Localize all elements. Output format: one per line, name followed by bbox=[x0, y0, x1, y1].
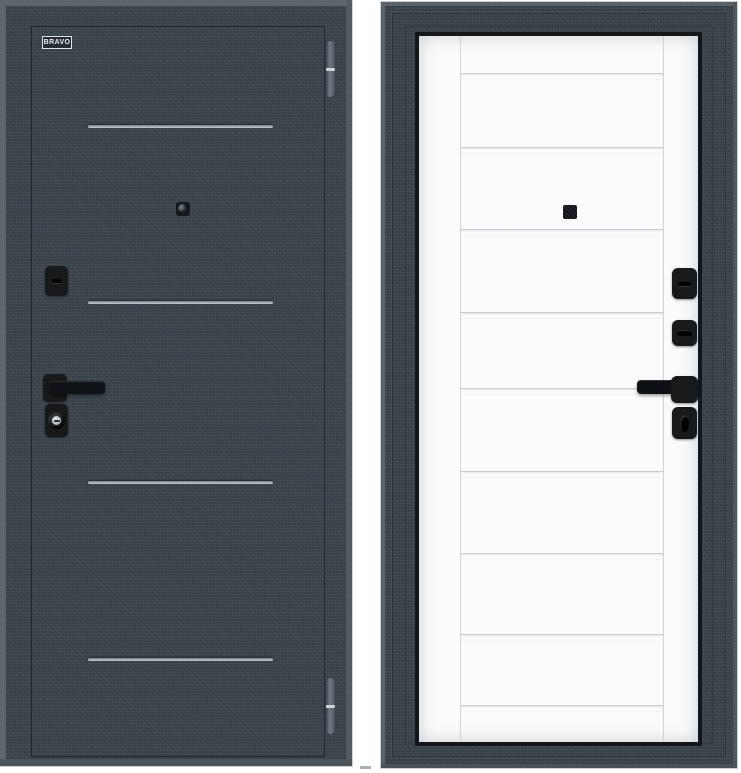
lever-handle bbox=[49, 381, 105, 394]
deadbolt-escutcheon bbox=[45, 266, 68, 296]
casing-edge-right bbox=[733, 2, 737, 768]
thumbturn-lower bbox=[672, 320, 697, 346]
cylinder-escutcheon bbox=[45, 404, 68, 437]
groove-line bbox=[88, 658, 273, 661]
casing-edge-left bbox=[381, 2, 385, 768]
groove-line bbox=[88, 125, 273, 128]
glass-strip bbox=[461, 388, 663, 395]
glass-strip bbox=[461, 312, 663, 319]
door-edge-right bbox=[346, 0, 352, 766]
glass-strip bbox=[461, 229, 663, 236]
casing-edge-bottom bbox=[381, 764, 737, 768]
hinge-bottom bbox=[326, 678, 335, 734]
door-edge-left bbox=[0, 0, 6, 766]
hinge-top bbox=[326, 41, 335, 97]
glass-strip bbox=[461, 471, 663, 478]
groove-line bbox=[88, 481, 273, 484]
peephole bbox=[563, 205, 577, 219]
glass-strip bbox=[461, 553, 663, 560]
interior-door-panel bbox=[381, 2, 737, 768]
glass-strip bbox=[461, 705, 663, 712]
door-edge-bottom bbox=[0, 759, 352, 766]
cylinder-escutcheon bbox=[672, 407, 697, 439]
glass-strip bbox=[461, 634, 663, 641]
door-product-photo: BRAVO bbox=[0, 0, 741, 773]
door-edge-top bbox=[0, 0, 352, 6]
casing-edge-top bbox=[381, 2, 737, 6]
thumbturn-upper bbox=[672, 268, 697, 299]
glass-strip bbox=[461, 73, 663, 80]
keyway-slot bbox=[54, 420, 60, 422]
handle-rose bbox=[671, 376, 698, 403]
peephole bbox=[176, 202, 190, 216]
groove-line bbox=[88, 301, 273, 304]
divider-dash bbox=[360, 766, 371, 769]
glass-strip bbox=[461, 147, 663, 154]
exterior-door-panel: BRAVO bbox=[0, 0, 352, 766]
brand-badge: BRAVO bbox=[42, 36, 72, 49]
